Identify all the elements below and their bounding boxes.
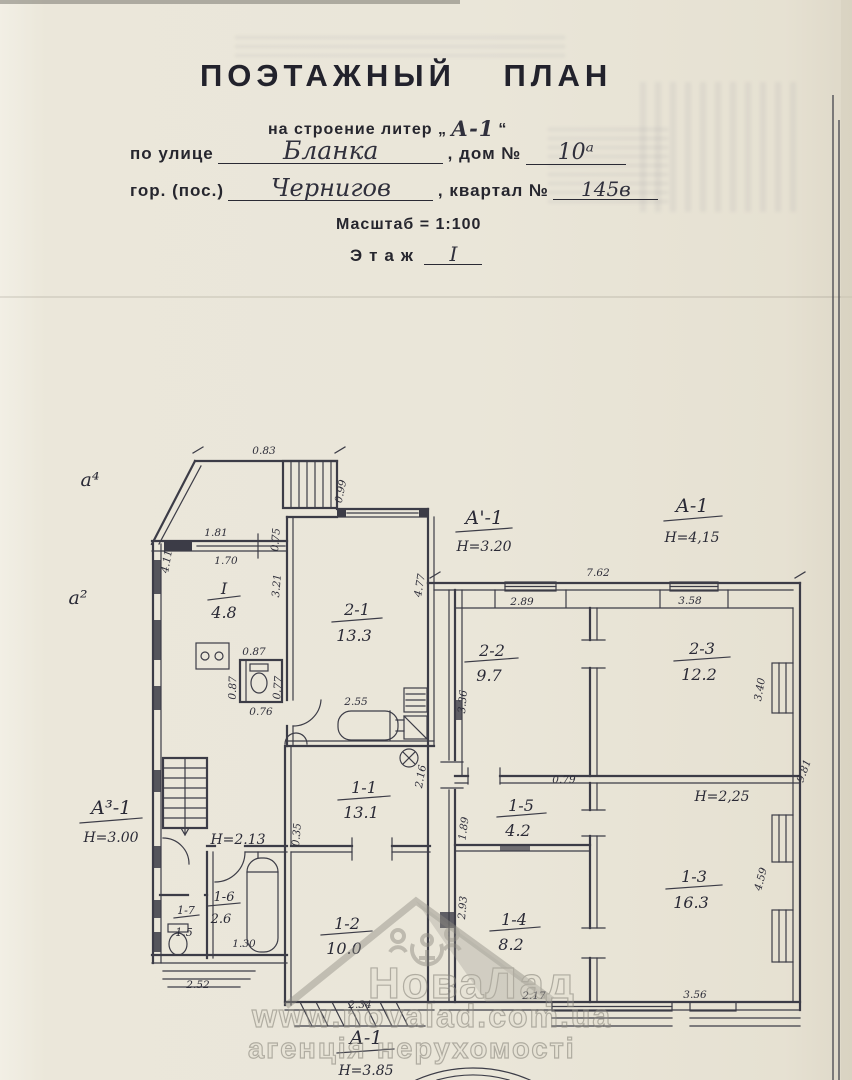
dim-label: 0.87 xyxy=(227,676,240,700)
floor-plan-drawing: I 4.8 2-1 13.3 2-2 9.7 2-3 12.2 1-1 13.1… xyxy=(0,0,852,1080)
dim-label: 3.36 xyxy=(456,689,470,714)
dim-label: 3.56 xyxy=(683,989,707,1001)
room-label-number: 1-4 xyxy=(501,910,527,929)
toilet-icon xyxy=(250,664,268,671)
sink-icon xyxy=(285,733,307,744)
room-label-number: 1-2 xyxy=(334,914,360,933)
dim-label: 2.89 xyxy=(509,596,534,608)
watermark-tagline: агенція нерухомості xyxy=(248,1033,576,1065)
room-label-number: 1-1 xyxy=(351,778,377,797)
dim-label: 1.70 xyxy=(214,555,238,567)
room-label-area: 1.5 xyxy=(175,926,193,939)
dim-label: 1.30 xyxy=(232,938,256,950)
room-label-number: 2-3 xyxy=(688,639,715,658)
dim-label: 0.75 xyxy=(269,527,283,552)
dim-label: 0.87 xyxy=(242,646,266,658)
dim-label: 0.79 xyxy=(552,774,576,786)
room-label-area: 13.3 xyxy=(336,626,372,645)
room-labels: I 4.8 2-1 13.3 2-2 9.7 2-3 12.2 1-1 13.1… xyxy=(174,579,730,958)
height-label: Н=3.00 xyxy=(82,830,138,846)
height-label: Н=2.13 xyxy=(209,832,265,848)
room-label-number: 1-7 xyxy=(177,904,195,917)
dim-label: 7.62 xyxy=(586,567,610,579)
dim-label: 0.99 xyxy=(333,478,350,504)
dim-label: 0.83 xyxy=(252,445,276,457)
room-label-area: 12.2 xyxy=(681,665,717,684)
height-label: Н=3.85 xyxy=(337,1063,393,1079)
litera-label: а² xyxy=(69,587,88,609)
dim-label: 1.89 xyxy=(456,816,471,841)
watermark-url: www.novalad.com.ua xyxy=(251,998,612,1034)
room-label-area: 2.6 xyxy=(210,912,232,927)
dim-label: 2.16 xyxy=(413,764,429,790)
room-label-area: 9.7 xyxy=(476,666,502,685)
dim-label: 2.93 xyxy=(456,895,470,921)
dim-label: 0.76 xyxy=(249,706,273,718)
litera-label: А³-1 xyxy=(89,797,132,819)
dim-label: 3.21 xyxy=(270,574,284,598)
dim-label: 3.40 xyxy=(752,677,768,702)
litera-label: А-1 xyxy=(674,495,709,517)
room-label-area: 4.2 xyxy=(504,821,530,840)
litera-label: А'-1 xyxy=(463,507,503,529)
dim-label: 2.52 xyxy=(185,979,210,991)
scanned-floor-plan-page: ПОЭТАЖНЫЙ ПЛАН на строение литер „А-1“ п… xyxy=(0,0,852,1080)
bathtub-icon xyxy=(338,711,398,740)
watermark: НоваЛад www.novalad.com.ua агенція нерух… xyxy=(248,901,612,1065)
room-label-area: 8.2 xyxy=(498,935,523,954)
room-label-number: I xyxy=(220,579,228,598)
dim-label: 4.77 xyxy=(412,573,428,599)
height-label: Н=4,15 xyxy=(663,530,719,546)
height-label: Н=2,25 xyxy=(693,789,749,805)
dim-label: 0.77 xyxy=(271,675,285,700)
height-label: Н=3.20 xyxy=(455,539,511,555)
room-label-number: 1-5 xyxy=(508,796,534,815)
dim-label: 3.58 xyxy=(678,595,702,607)
dim-label: 2.55 xyxy=(343,696,368,708)
page-border xyxy=(833,0,852,1080)
litera-label: а⁴ xyxy=(81,469,100,491)
room-label-number: 2-2 xyxy=(478,641,505,660)
room-label-area: 4.8 xyxy=(210,603,236,622)
room-label-number: 1-6 xyxy=(214,890,235,905)
dim-label: 1.81 xyxy=(204,527,227,539)
stamp-arc xyxy=(416,1068,530,1080)
dim-label: 4.59 xyxy=(752,866,770,893)
room-label-number: 1-3 xyxy=(681,867,707,886)
room-label-number: 2-1 xyxy=(343,600,370,619)
room-label-area: 16.3 xyxy=(673,893,709,912)
dim-label: 9.81 xyxy=(795,758,814,784)
dim-label: 0.35 xyxy=(290,822,304,847)
room-label-area: 13.1 xyxy=(343,803,379,822)
